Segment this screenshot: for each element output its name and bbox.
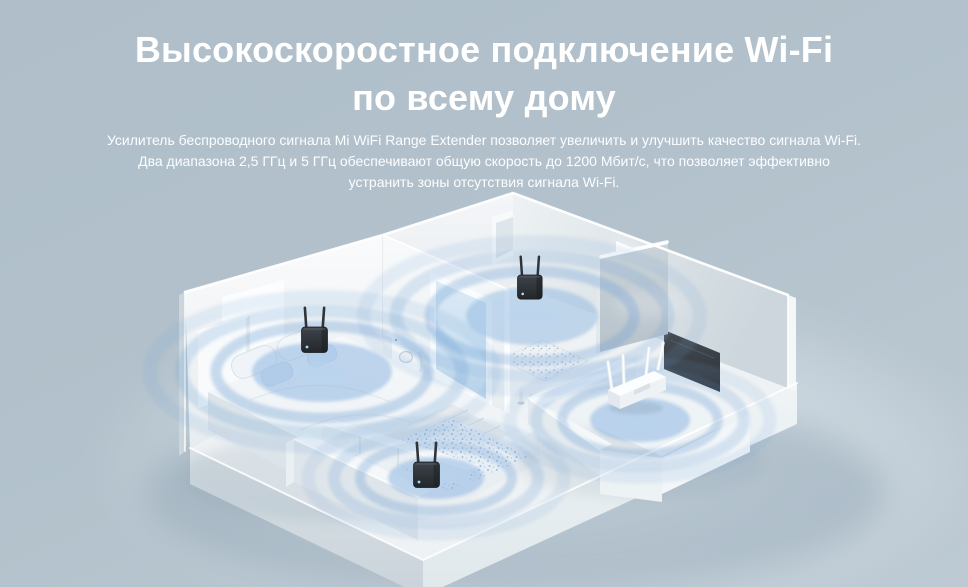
hero-text-block: Высокоскоростное подключение Wi-Fi по вс… bbox=[0, 0, 968, 193]
description-line-1: Усилитель беспроводного сигнала Mi WiFi … bbox=[0, 130, 968, 151]
title-line-1: Высокоскоростное подключение Wi-Fi bbox=[0, 26, 968, 74]
title-line-2: по всему дому bbox=[0, 74, 968, 122]
right-wall-end-cap bbox=[788, 295, 796, 391]
description-line-2: Два диапазона 2,5 ГГц и 5 ГГц обеспечива… bbox=[0, 151, 968, 172]
hero-section: Высокоскоростное подключение Wi-Fi по вс… bbox=[0, 0, 968, 587]
page-title: Высокоскоростное подключение Wi-Fi по вс… bbox=[0, 26, 968, 122]
page-description: Усилитель беспроводного сигнала Mi WiFi … bbox=[0, 130, 968, 193]
description-line-3: устранить зоны отсутствия сигнала Wi-Fi. bbox=[0, 172, 968, 193]
apartment-scene bbox=[110, 193, 968, 587]
